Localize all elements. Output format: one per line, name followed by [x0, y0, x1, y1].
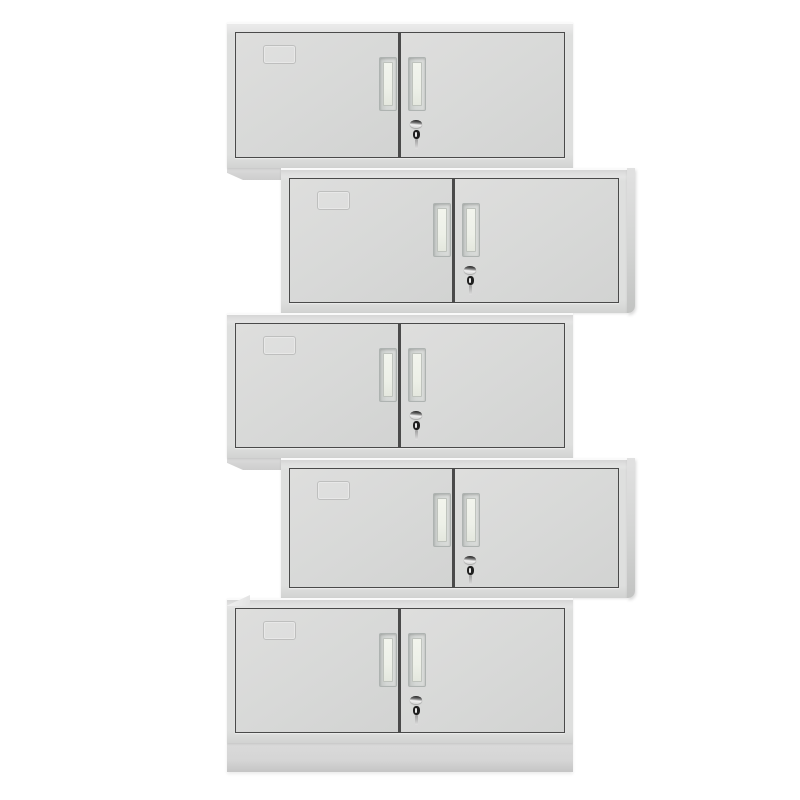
left-door [236, 609, 398, 732]
key-lock [464, 266, 476, 295]
key-stem [415, 139, 418, 149]
cabinet-1 [227, 22, 573, 168]
left-door [290, 179, 452, 302]
cabinet-top-edge [227, 313, 573, 315]
key-icon [413, 706, 420, 715]
handle-grip [412, 353, 422, 397]
cabinet-top-edge [227, 22, 573, 24]
key-stem [469, 285, 472, 295]
label-card-holder [263, 45, 296, 64]
door-area [289, 468, 619, 588]
lock-cylinder-icon [410, 120, 422, 128]
cabinet-plinth [227, 742, 573, 772]
cabinet-top-edge [281, 168, 627, 170]
cabinet-4 [281, 458, 627, 598]
key-stem [415, 715, 418, 725]
cabinet-3 [227, 313, 573, 458]
left-door-handle [379, 633, 397, 687]
left-door [236, 33, 398, 157]
right-door-handle [408, 633, 426, 687]
key-lock [464, 556, 476, 585]
label-card-holder [263, 336, 296, 355]
left-door-handle [379, 348, 397, 402]
handle-grip [466, 208, 476, 252]
key-icon [467, 566, 474, 575]
handle-grip [383, 62, 393, 106]
cabinet-2 [281, 168, 627, 313]
lock-cylinder-icon [410, 696, 422, 704]
cabinet-body [281, 168, 627, 313]
left-door-handle [433, 203, 451, 257]
cabinet-top-edge [281, 458, 627, 460]
cabinet-body [227, 598, 573, 743]
label-card-holder [317, 481, 350, 500]
key-lock [410, 411, 422, 440]
door-area [289, 178, 619, 303]
right-door-handle [408, 57, 426, 111]
right-door-handle [462, 203, 480, 257]
cabinet-body [227, 22, 573, 168]
key-lock [410, 696, 422, 725]
right-door-handle [462, 493, 480, 547]
cabinet-top-edge [227, 598, 573, 600]
door-area [235, 608, 565, 733]
stage [0, 0, 800, 800]
cabinet-side-panel [627, 458, 635, 598]
left-door-handle [433, 493, 451, 547]
key-stem [415, 430, 418, 440]
top-corner-bevel [226, 595, 250, 606]
handle-grip [466, 498, 476, 542]
left-door [236, 324, 398, 447]
right-door-handle [408, 348, 426, 402]
label-card-holder [263, 621, 296, 640]
lock-cylinder-icon [464, 266, 476, 274]
handle-grip [412, 62, 422, 106]
door-area [235, 323, 565, 448]
left-door-handle [379, 57, 397, 111]
key-icon [413, 421, 420, 430]
lock-cylinder-icon [464, 556, 476, 564]
lock-cylinder-icon [410, 411, 422, 419]
door-area [235, 32, 565, 158]
cabinet-side-panel [627, 168, 635, 313]
label-card-holder [317, 191, 350, 210]
left-door [290, 469, 452, 587]
handle-grip [383, 638, 393, 682]
cabinet-5 [227, 598, 573, 743]
cabinet-body [281, 458, 627, 598]
handle-grip [383, 353, 393, 397]
cabinet-body [227, 313, 573, 458]
key-lock [410, 120, 422, 149]
key-icon [413, 130, 420, 139]
key-stem [469, 575, 472, 585]
handle-grip [437, 498, 447, 542]
handle-grip [437, 208, 447, 252]
key-icon [467, 276, 474, 285]
handle-grip [412, 638, 422, 682]
